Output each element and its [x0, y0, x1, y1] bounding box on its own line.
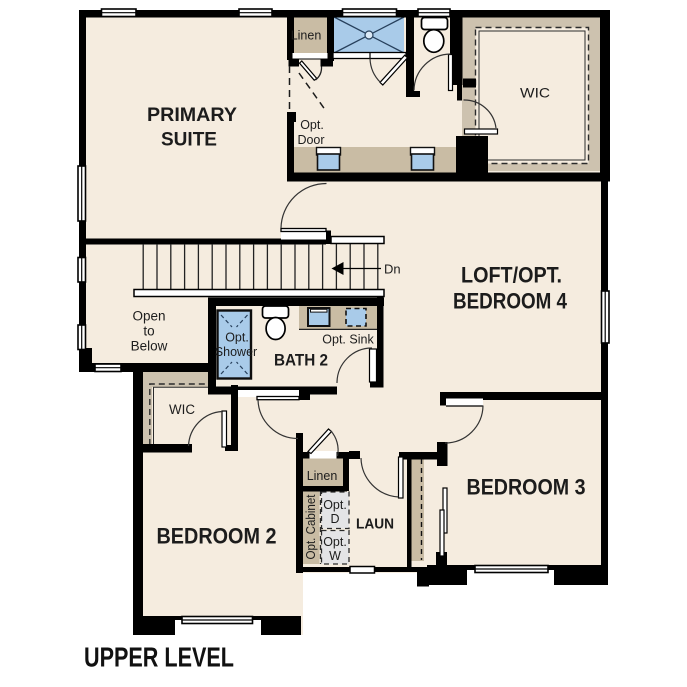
svg-text:WIC: WIC: [169, 402, 195, 417]
svg-text:Linen: Linen: [307, 469, 338, 483]
svg-text:Opt. Sink: Opt. Sink: [322, 333, 374, 347]
svg-text:to: to: [143, 324, 154, 339]
svg-text:WIC: WIC: [520, 85, 550, 101]
svg-text:Opt. Cabinet: Opt. Cabinet: [304, 494, 318, 559]
svg-text:D: D: [330, 512, 339, 526]
svg-text:UPPER LEVEL: UPPER LEVEL: [84, 642, 234, 673]
svg-text:Opt.: Opt.: [323, 535, 347, 549]
svg-text:W: W: [329, 549, 341, 563]
svg-text:Opt.: Opt.: [225, 331, 249, 345]
svg-text:BEDROOM 2: BEDROOM 2: [157, 524, 277, 549]
svg-text:Linen: Linen: [291, 29, 322, 43]
svg-text:BEDROOM 3: BEDROOM 3: [467, 475, 586, 500]
svg-text:SUITE: SUITE: [161, 129, 217, 151]
svg-text:LOFT/OPT.: LOFT/OPT.: [461, 263, 562, 288]
svg-text:Dn: Dn: [384, 262, 401, 277]
svg-text:BATH 2: BATH 2: [274, 352, 328, 370]
svg-text:Below: Below: [131, 339, 168, 354]
svg-text:BEDROOM 4: BEDROOM 4: [453, 289, 567, 314]
svg-text:Shower: Shower: [215, 345, 257, 359]
svg-text:Door: Door: [297, 133, 324, 147]
svg-text:PRIMARY: PRIMARY: [147, 104, 237, 126]
svg-text:LAUN: LAUN: [356, 516, 394, 533]
svg-text:Opt.: Opt.: [323, 498, 347, 512]
svg-text:Opt.: Opt.: [300, 118, 324, 132]
svg-text:Open: Open: [132, 309, 165, 324]
